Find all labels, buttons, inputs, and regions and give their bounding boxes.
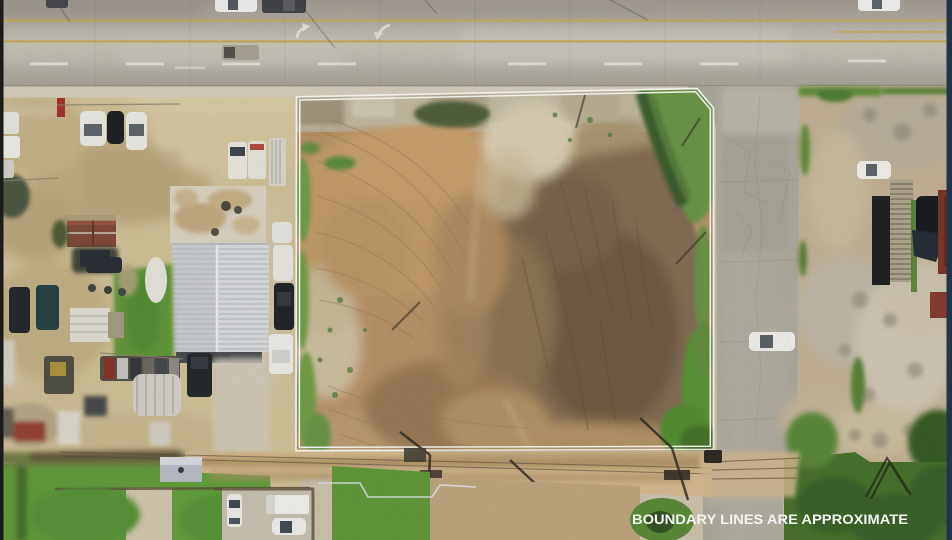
svg-text:BOUNDARY LINES ARE APPROXIMATE: BOUNDARY LINES ARE APPROXIMATE (632, 511, 908, 527)
